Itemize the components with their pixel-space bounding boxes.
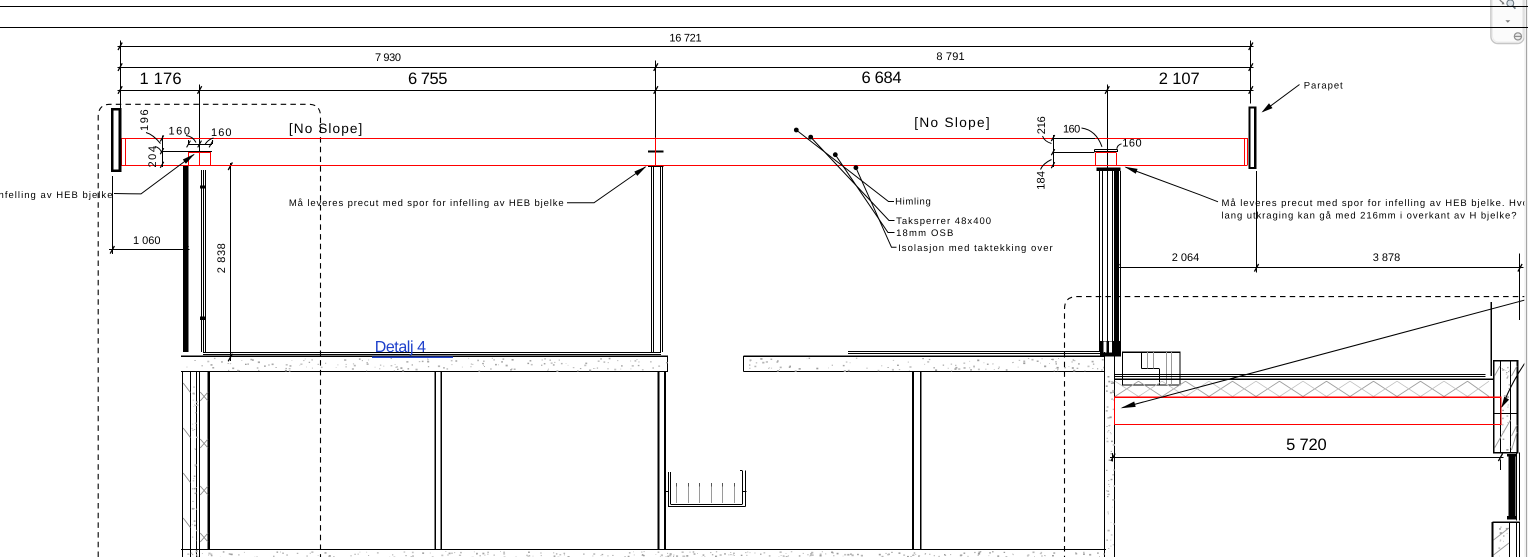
- svg-text:2 064: 2 064: [1172, 252, 1200, 264]
- svg-text:2 107: 2 107: [1159, 70, 1200, 88]
- svg-text:18mm OSB: 18mm OSB: [896, 228, 953, 239]
- svg-text:Må leveres precut med spor for: Må leveres precut med spor for infelling…: [1222, 198, 1528, 209]
- svg-text:216: 216: [1036, 116, 1048, 134]
- svg-text:Himling: Himling: [895, 197, 931, 208]
- svg-text:5 720: 5 720: [1286, 436, 1327, 454]
- svg-text:7 930: 7 930: [375, 52, 401, 64]
- svg-text:8 791: 8 791: [936, 51, 964, 63]
- svg-text:Parapet: Parapet: [1304, 80, 1343, 91]
- svg-text:nfelling av HEB bjelke: nfelling av HEB bjelke: [0, 190, 113, 201]
- svg-text:Må leveres precut med spor for: Må leveres precut med spor for infelling…: [289, 198, 564, 209]
- svg-text:Isolasjon med taktekking over: Isolasjon med taktekking over: [898, 243, 1053, 254]
- svg-text:Taksperrer 48x400: Taksperrer 48x400: [896, 216, 991, 227]
- svg-text:lang utkraging kan gå med 216m: lang utkraging kan gå med 216mm i overka…: [1222, 211, 1517, 222]
- svg-text:Detalj 4: Detalj 4: [375, 339, 426, 356]
- svg-text:204: 204: [147, 146, 159, 168]
- svg-text:1 176: 1 176: [140, 70, 182, 88]
- svg-text:[No Slope]: [No Slope]: [914, 115, 989, 130]
- svg-text:184: 184: [1035, 171, 1047, 190]
- svg-text:160: 160: [211, 127, 232, 139]
- svg-text:1 060: 1 060: [133, 235, 161, 247]
- svg-text:16 721: 16 721: [669, 32, 701, 44]
- svg-text:3 878: 3 878: [1373, 252, 1401, 264]
- svg-text:6 684: 6 684: [862, 69, 902, 87]
- svg-text:2 838: 2 838: [216, 243, 228, 273]
- svg-text:160: 160: [1063, 123, 1080, 135]
- svg-text:6 755: 6 755: [408, 70, 448, 88]
- svg-text:160: 160: [1122, 138, 1141, 150]
- svg-text:196: 196: [139, 109, 151, 131]
- svg-text:[No Slope]: [No Slope]: [289, 121, 362, 136]
